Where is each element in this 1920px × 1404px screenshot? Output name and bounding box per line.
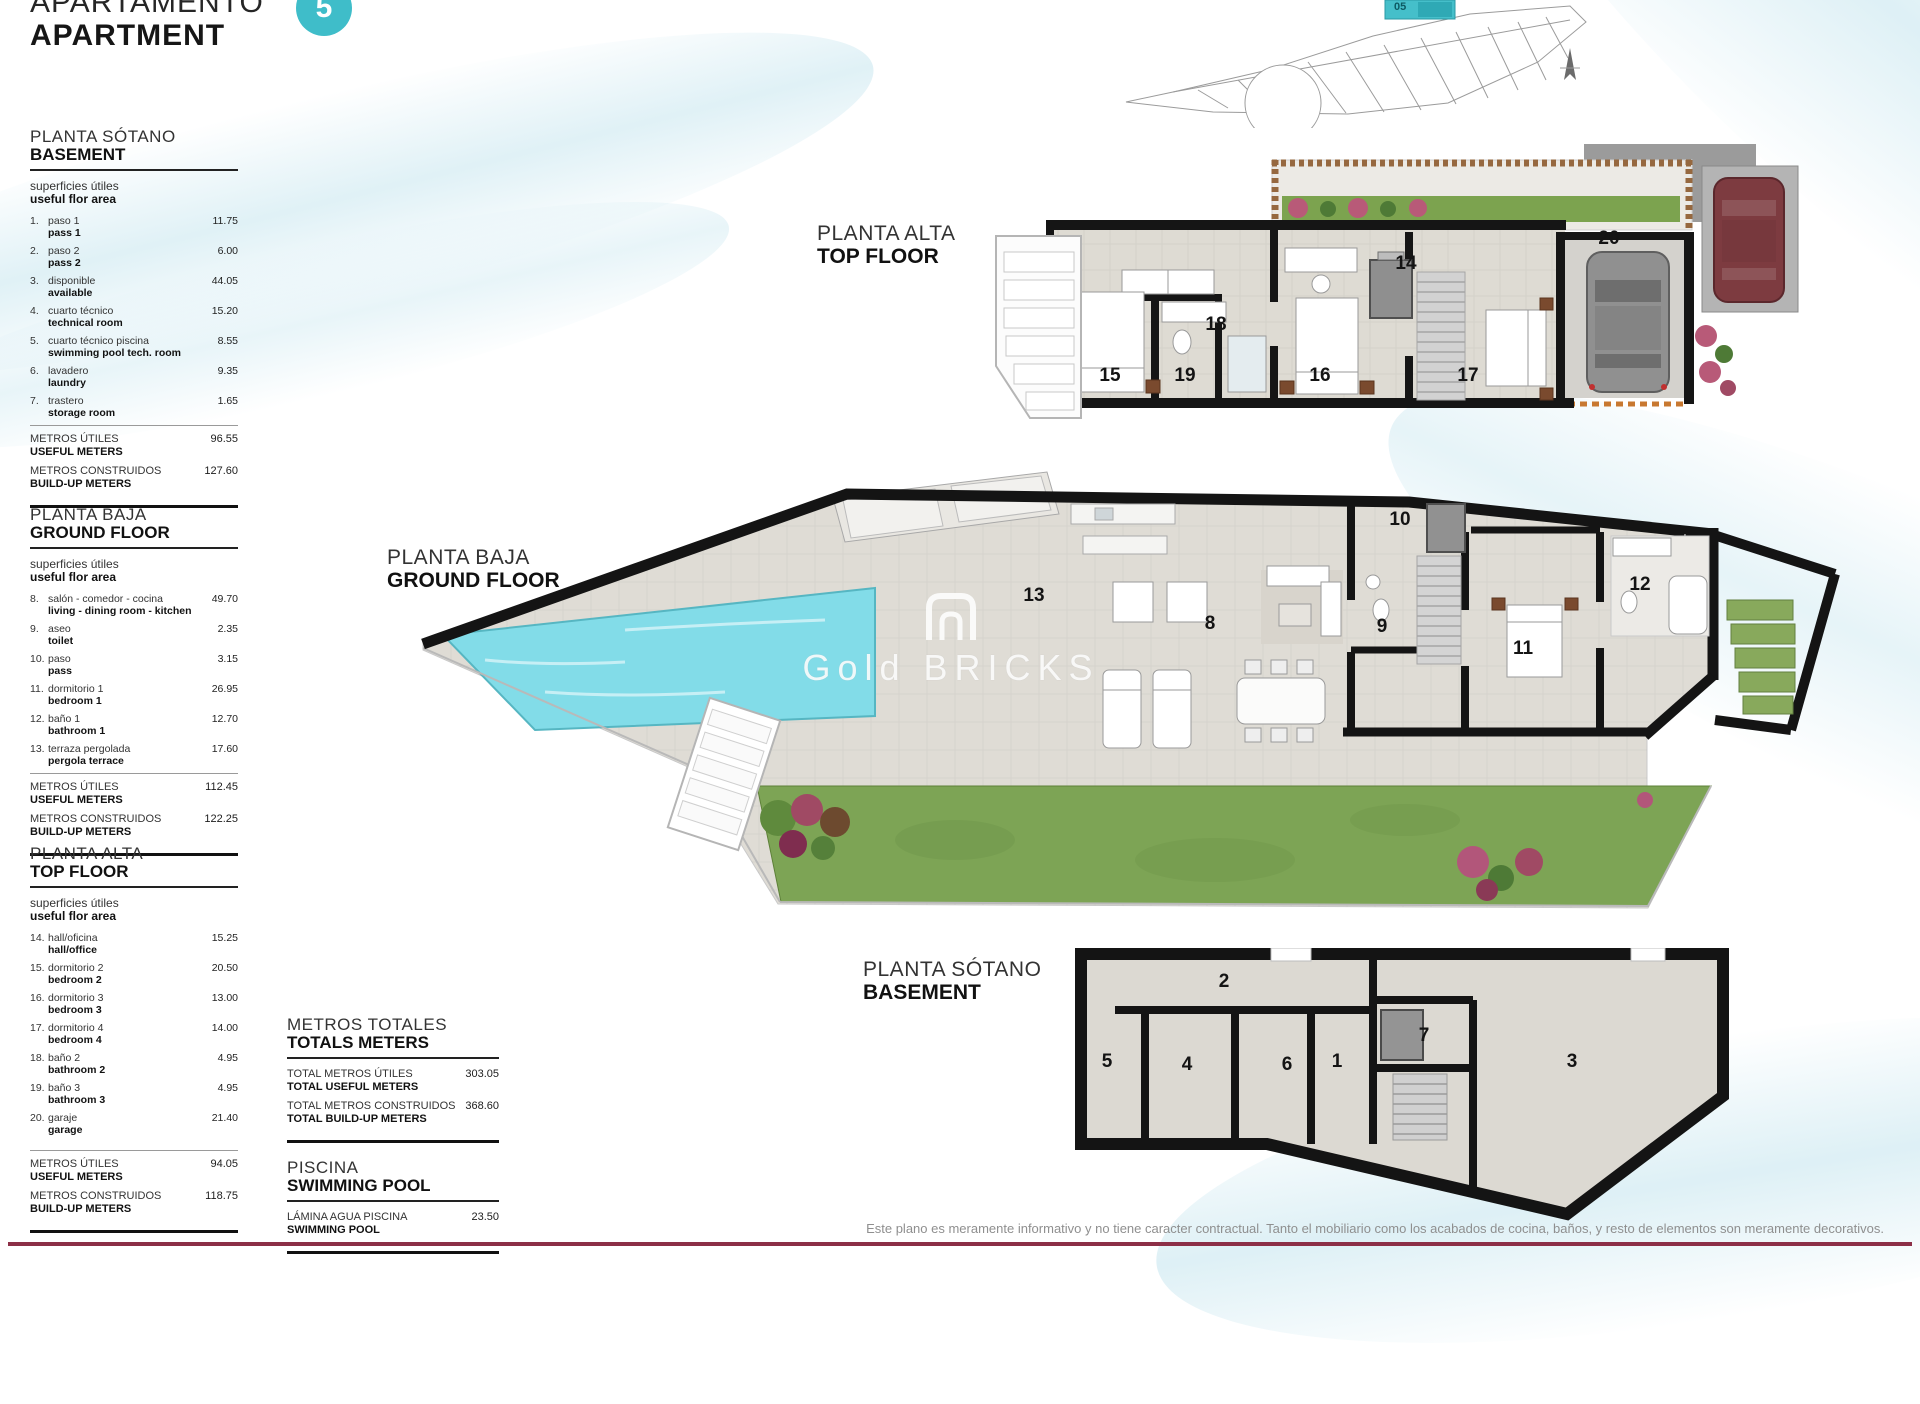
area-section-ground-floor: PLANTA BAJA GROUND FLOOR superficies úti… (30, 506, 238, 856)
pool-section: PISCINA SWIMMING POOL LÁMINA AGUA PISCIN… (287, 1159, 499, 1254)
site-location-plan (1118, 0, 1598, 128)
room-number: 7 (1419, 1025, 1430, 1047)
area-row: 7.trasterostorage room1.65 (30, 395, 238, 419)
total-row: METROS CONSTRUIDOSBUILD-UP METERS127.60 (30, 465, 238, 490)
unit-number: 5 (316, 0, 333, 25)
parked-car (1714, 178, 1784, 302)
area-row: 14.hall/oficinahall/office15.25 (30, 932, 238, 956)
total-row: METROS CONSTRUIDOSBUILD-UP METERS118.75 (30, 1190, 238, 1215)
room-number: 14 (1395, 253, 1416, 275)
room-number: 16 (1309, 365, 1330, 387)
area-row: 16.dormitorio 3bedroom 313.00 (30, 992, 238, 1016)
toilet (1173, 330, 1191, 354)
footer-divider-line (8, 1242, 1912, 1246)
flower-bushes (1695, 325, 1736, 396)
disclaimer-text: Este plano es meramente informativo y no… (700, 1221, 1884, 1236)
area-row: 17.dormitorio 4bedroom 414.00 (30, 1022, 238, 1046)
room-number: 1 (1332, 1051, 1343, 1073)
title-spanish: APARTAMENTO (30, 0, 264, 19)
room-number: 17 (1457, 365, 1478, 387)
room-number: 2 (1219, 971, 1230, 993)
garden-steps (1727, 600, 1795, 714)
room-number: 15 (1099, 365, 1120, 387)
room-number: 13 (1023, 585, 1044, 607)
parking-area (1702, 166, 1798, 312)
garage-car (1587, 252, 1669, 392)
area-row: 8.salón - comedor - cocinaliving - dinin… (30, 593, 238, 617)
area-row: 9.aseotoilet2.35 (30, 623, 238, 647)
section-subtitle: superficies útiles useful flor area (30, 558, 238, 584)
section-subtitle: superficies útiles useful flor area (30, 897, 238, 923)
site-outline (1126, 6, 1586, 128)
room-number: 11 (1513, 638, 1533, 660)
page-title: APARTAMENTO APARTMENT (30, 0, 264, 52)
area-row: 15.dormitorio 2bedroom 220.50 (30, 962, 238, 986)
room-number: 5 (1102, 1051, 1113, 1073)
area-row: 2.paso 2pass 26.00 (30, 245, 238, 269)
room-number: 20 (1598, 228, 1619, 250)
total-row: TOTAL METROS CONSTRUIDOSTOTAL BUILD-UP M… (287, 1100, 499, 1125)
garage (1565, 240, 1687, 404)
section-title: PLANTA ALTA TOP FLOOR (30, 845, 238, 888)
sofa (1261, 566, 1343, 644)
total-row: METROS ÚTILESUSEFUL METERS94.05 (30, 1158, 238, 1183)
area-row: 4.cuarto técnicotechnical room15.20 (30, 305, 238, 329)
area-row: 5.cuarto técnico piscinaswimming pool te… (30, 335, 238, 359)
area-row: 18.baño 2bathroom 24.95 (30, 1052, 238, 1076)
desk (1285, 248, 1357, 272)
total-row: LÁMINA AGUA PISCINASWIMMING POOL23.50 (287, 1211, 499, 1236)
room-number: 19 (1174, 365, 1195, 387)
room-number: 9 (1377, 616, 1388, 638)
shower (1228, 336, 1266, 392)
area-row: 11.dormitorio 1bedroom 126.95 (30, 683, 238, 707)
room-number: 8 (1205, 613, 1216, 635)
room-number: 4 (1182, 1054, 1193, 1076)
area-row: 6.lavaderolaundry9.35 (30, 365, 238, 389)
area-row: 1.paso 1pass 111.75 (30, 215, 238, 239)
elevator (1381, 1010, 1423, 1060)
section-title: PLANTA BAJA GROUND FLOOR (30, 506, 238, 549)
top-floor-plan-drawing (980, 140, 1815, 490)
area-row: 3.disponibleavailable44.05 (30, 275, 238, 299)
room-number: 6 (1282, 1054, 1293, 1076)
room-number: 12 (1629, 574, 1650, 596)
room-number: 18 (1205, 314, 1226, 336)
north-arrow-icon (1560, 48, 1580, 80)
total-row: METROS ÚTILESUSEFUL METERS112.45 (30, 781, 238, 806)
section-title: PLANTA SÓTANO BASEMENT (30, 128, 238, 171)
top-floor-plan-label: PLANTA ALTA TOP FLOOR (817, 222, 956, 268)
basement-plan: 2 5 4 6 1 7 3 (1075, 948, 1735, 1223)
roof-terrace (1272, 160, 1692, 230)
garden (757, 786, 1711, 906)
site-unit-label: 05 (1394, 1, 1406, 13)
room-number: 3 (1567, 1051, 1578, 1073)
top-floor-plan: 14 18 15 19 16 17 20 (980, 140, 1815, 490)
bathroom-1-fixtures (1611, 536, 1709, 636)
area-section-top-floor: PLANTA ALTA TOP FLOOR superficies útiles… (30, 845, 238, 1233)
area-row: 13.terraza pergoladapergola terrace17.60 (30, 743, 238, 767)
title-english: APARTMENT (30, 19, 264, 52)
unit-number-badge: 5 (296, 0, 352, 36)
area-row: 12.baño 1bathroom 112.70 (30, 713, 238, 737)
chair (1312, 275, 1330, 293)
area-row: 10.pasopass3.15 (30, 653, 238, 677)
total-row: METROS CONSTRUIDOSBUILD-UP METERS122.25 (30, 813, 238, 838)
elevator (1427, 504, 1465, 552)
room-number: 10 (1389, 509, 1410, 531)
dining-table (1237, 660, 1325, 742)
exterior-stairs (996, 236, 1081, 418)
bed (1486, 310, 1546, 386)
total-row: METROS ÚTILESUSEFUL METERS96.55 (30, 433, 238, 458)
section-subtitle: superficies útiles useful flor area (30, 180, 238, 206)
area-row: 19.baño 3bathroom 34.95 (30, 1082, 238, 1106)
basement-plan-drawing (1075, 948, 1735, 1223)
area-row: 20.garajegarage21.40 (30, 1112, 238, 1136)
area-section-basement: PLANTA SÓTANO BASEMENT superficies útile… (30, 128, 238, 508)
